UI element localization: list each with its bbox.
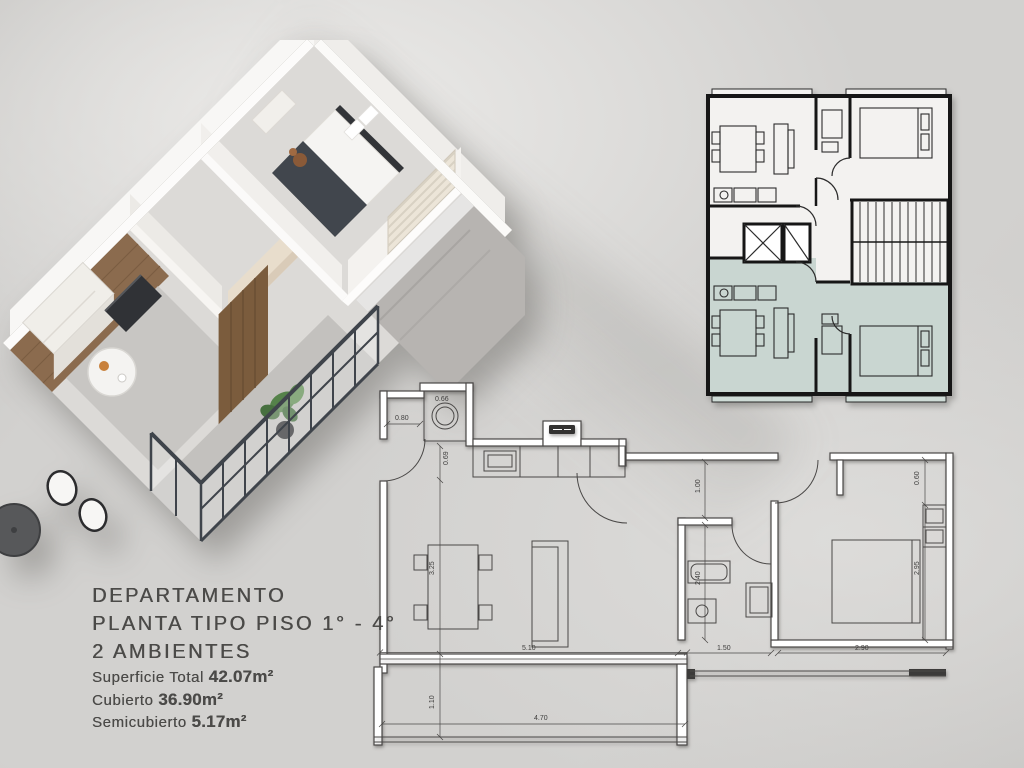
info-area-covered: Cubierto 36.90m² [92, 689, 432, 712]
dim-closet-width: 0.60 [914, 471, 921, 485]
info-title-line3: 2 AMBIENTES [92, 638, 432, 666]
kitchen-counter [473, 446, 625, 477]
hall-door-arc [577, 473, 627, 523]
dim-entry-width: 0.80 [395, 415, 409, 422]
info-area-total-value: 42.07m² [209, 667, 274, 686]
bedroom-door-arc [775, 460, 818, 503]
bathroom [688, 561, 772, 623]
washing-machine [432, 403, 458, 429]
bed-plan [832, 540, 920, 623]
dim-bath-width: 1.50 [717, 645, 731, 652]
sofa [532, 541, 568, 647]
info-title-line2: PLANTA TIPO PISO 1° - 4° [92, 610, 432, 638]
dim-living-width: 5.10 [522, 645, 536, 652]
toilet [688, 599, 716, 623]
stove [484, 451, 516, 471]
info-area-total: Superficie Total 42.07m² [92, 666, 432, 689]
info-title-line1: DEPARTAMENTO [92, 582, 432, 610]
bathroom-door-arc [732, 525, 771, 564]
wardrobe [923, 505, 946, 640]
outdoor-chairs [43, 468, 110, 535]
info-area-semicovered-value: 5.17m² [192, 712, 247, 731]
info-area-covered-label: Cubierto [92, 692, 154, 709]
dim-laundry-machine: 0.66 [435, 396, 449, 403]
key-plan [700, 88, 958, 403]
info-area-covered-value: 36.90m² [158, 690, 223, 709]
plan-wall-details [374, 391, 946, 742]
dim-living-depth: 3.25 [429, 561, 436, 575]
listing-image: 0.80 0.66 0.69 3.25 5.10 1.10 4.70 1.00 … [0, 0, 1024, 768]
dim-bedroom-width: 2.90 [855, 645, 869, 652]
entrance-door-arc [383, 439, 425, 481]
dimension-lines [377, 421, 949, 740]
outdoor-table [0, 504, 40, 556]
dim-bedroom-depth: 2.95 [914, 561, 921, 575]
info-area-total-label: Superficie Total [92, 669, 204, 686]
coffee-table [88, 348, 136, 396]
info-area-semicovered: Semicubierto 5.17m² [92, 711, 432, 734]
parapet-end-cap [687, 669, 695, 679]
floor-plan-detailed: 0.80 0.66 0.69 3.25 5.10 1.10 4.70 1.00 … [372, 377, 968, 765]
window-sill-cap [909, 669, 946, 676]
apartment-info: DEPARTAMENTO PLANTA TIPO PISO 1° - 4° 2 … [92, 582, 432, 734]
dim-hall-width: 1.00 [695, 479, 702, 493]
dim-balcony-width: 4.70 [534, 715, 548, 722]
dim-bath-depth: 2.40 [695, 571, 702, 585]
elevator [744, 224, 810, 262]
dim-kitchen-aisle: 0.69 [443, 451, 450, 465]
plan-walls [374, 383, 953, 745]
info-area-semicovered-label: Semicubierto [92, 714, 187, 731]
